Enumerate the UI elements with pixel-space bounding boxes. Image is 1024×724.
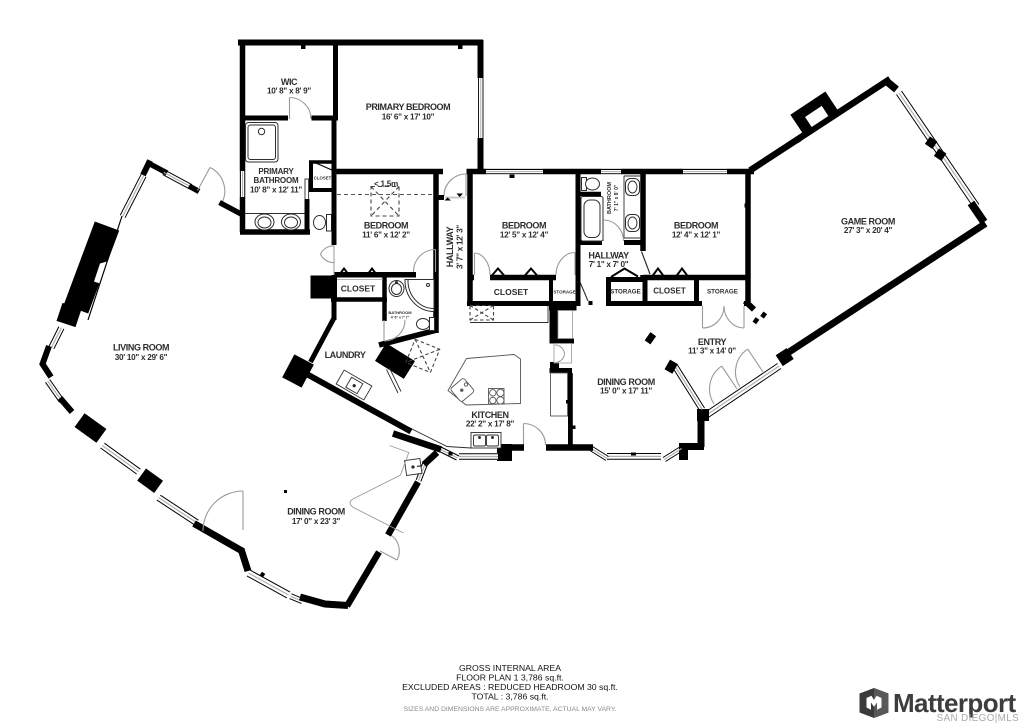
svg-text:STORAGE: STORAGE (707, 289, 738, 296)
svg-text:17' 0" x 23' 3": 17' 0" x 23' 3" (292, 517, 341, 526)
svg-text:7' 1" x 8' 0": 7' 1" x 8' 0" (614, 184, 620, 211)
svg-text:KITCHEN: KITCHEN (471, 410, 508, 420)
svg-text:TOTAL : 3,786 sq.ft.: TOTAL : 3,786 sq.ft. (471, 692, 548, 702)
svg-text:CLOSET: CLOSET (314, 176, 332, 181)
svg-text:HALLWAY: HALLWAY (445, 226, 455, 267)
svg-text:GROSS INTERNAL AREA: GROSS INTERNAL AREA (459, 663, 561, 673)
svg-text:10' 8" x 8' 9": 10' 8" x 8' 9" (267, 87, 311, 96)
svg-text:ENTRY: ENTRY (698, 337, 727, 347)
svg-text:CLOSET: CLOSET (494, 287, 529, 297)
svg-text:BEDROOM: BEDROOM (674, 221, 718, 231)
svg-text:22' 2" x 17' 8": 22' 2" x 17' 8" (466, 420, 515, 429)
svg-text:BATHROOM: BATHROOM (254, 176, 299, 185)
svg-text:EXCLUDED AREAS : REDUCED HEAD: EXCLUDED AREAS : REDUCED HEADROOM 30 sq.… (402, 682, 618, 692)
svg-text:12' 4" x 12' 1": 12' 4" x 12' 1" (672, 231, 721, 240)
svg-text:11' 3" x 14' 0": 11' 3" x 14' 0" (688, 347, 736, 356)
svg-text:LIVING ROOM: LIVING ROOM (113, 343, 169, 353)
svg-text:CLOSET: CLOSET (653, 287, 686, 296)
svg-text:11' 6" x 12' 2": 11' 6" x 12' 2" (362, 231, 410, 240)
svg-text:PRIMARY BEDROOM: PRIMARY BEDROOM (366, 102, 451, 112)
svg-text:< 1.5m: < 1.5m (374, 180, 398, 189)
svg-text:STORAGE: STORAGE (610, 289, 640, 296)
svg-text:WIC: WIC (281, 77, 298, 87)
svg-text:LAUNDRY: LAUNDRY (325, 350, 366, 360)
svg-text:7' 1" x 7' 0": 7' 1" x 7' 0" (589, 260, 629, 269)
svg-text:3' 7" x 12' 3": 3' 7" x 12' 3" (456, 225, 465, 269)
svg-text:BATHROOM: BATHROOM (388, 310, 412, 315)
svg-text:HALLWAY: HALLWAY (588, 251, 629, 261)
svg-text:30' 10" x 29' 6": 30' 10" x 29' 6" (115, 353, 168, 362)
svg-text:BEDROOM: BEDROOM (502, 221, 546, 231)
svg-text:STORAGE: STORAGE (553, 290, 575, 295)
svg-text:SIZES AND DIMENSIONS ARE APPRO: SIZES AND DIMENSIONS ARE APPROXIMATE, AC… (404, 706, 617, 713)
svg-text:BATHROOM: BATHROOM (607, 182, 613, 214)
svg-text:SAN DIEGO|MLS: SAN DIEGO|MLS (937, 713, 1019, 724)
svg-text:FLOOR PLAN 1 3,786 sq.ft.: FLOOR PLAN 1 3,786 sq.ft. (456, 673, 564, 683)
svg-text:GAME ROOM: GAME ROOM (841, 217, 895, 227)
svg-text:10' 8" x 12' 11": 10' 8" x 12' 11" (250, 186, 302, 195)
svg-text:27' 3" x 20' 4": 27' 3" x 20' 4" (844, 226, 893, 235)
svg-text:12' 5" x 12' 4": 12' 5" x 12' 4" (500, 231, 549, 240)
svg-text:DINING ROOM: DINING ROOM (597, 377, 655, 387)
svg-text:CLOSET: CLOSET (341, 284, 376, 294)
svg-text:16' 6" x 17' 10": 16' 6" x 17' 10" (382, 113, 435, 122)
svg-text:4' 6" x 7' 7": 4' 6" x 7' 7" (391, 316, 410, 320)
svg-text:DINING ROOM: DINING ROOM (287, 507, 345, 517)
svg-text:PRIMARY: PRIMARY (258, 167, 294, 176)
svg-text:BEDROOM: BEDROOM (364, 221, 408, 231)
svg-text:15' 0" x 17' 11": 15' 0" x 17' 11" (600, 387, 652, 396)
